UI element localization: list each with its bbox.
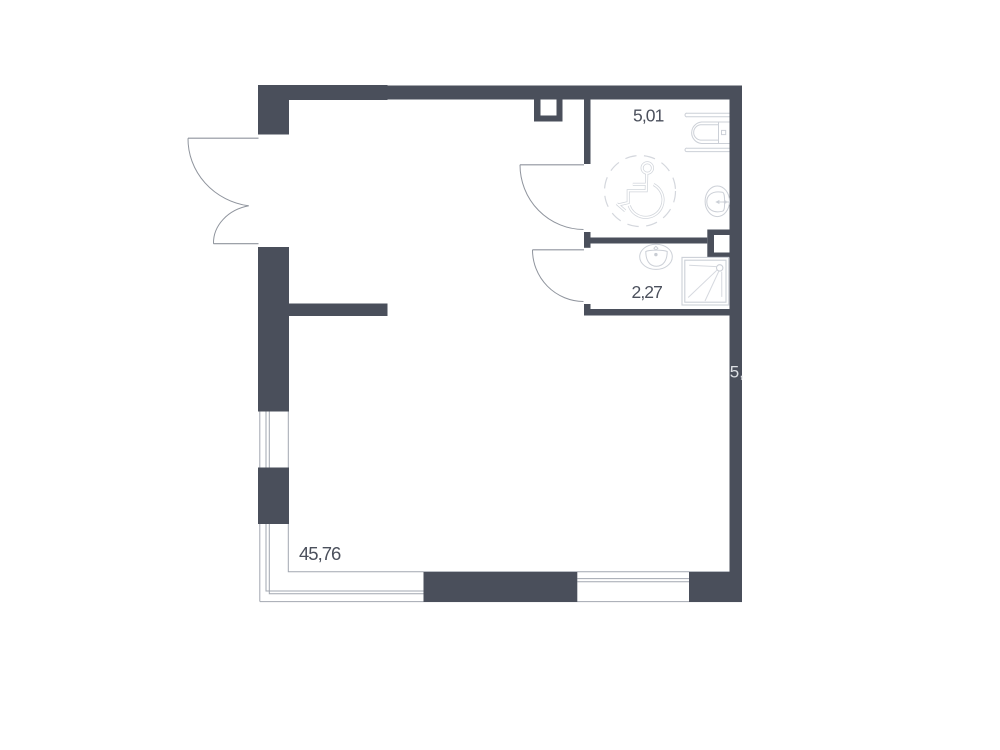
svg-text:2,27: 2,27: [632, 282, 663, 302]
svg-text:5,01: 5,01: [633, 106, 664, 126]
svg-text:45,76: 45,76: [299, 543, 341, 564]
svg-text:5,: 5,: [730, 363, 744, 382]
